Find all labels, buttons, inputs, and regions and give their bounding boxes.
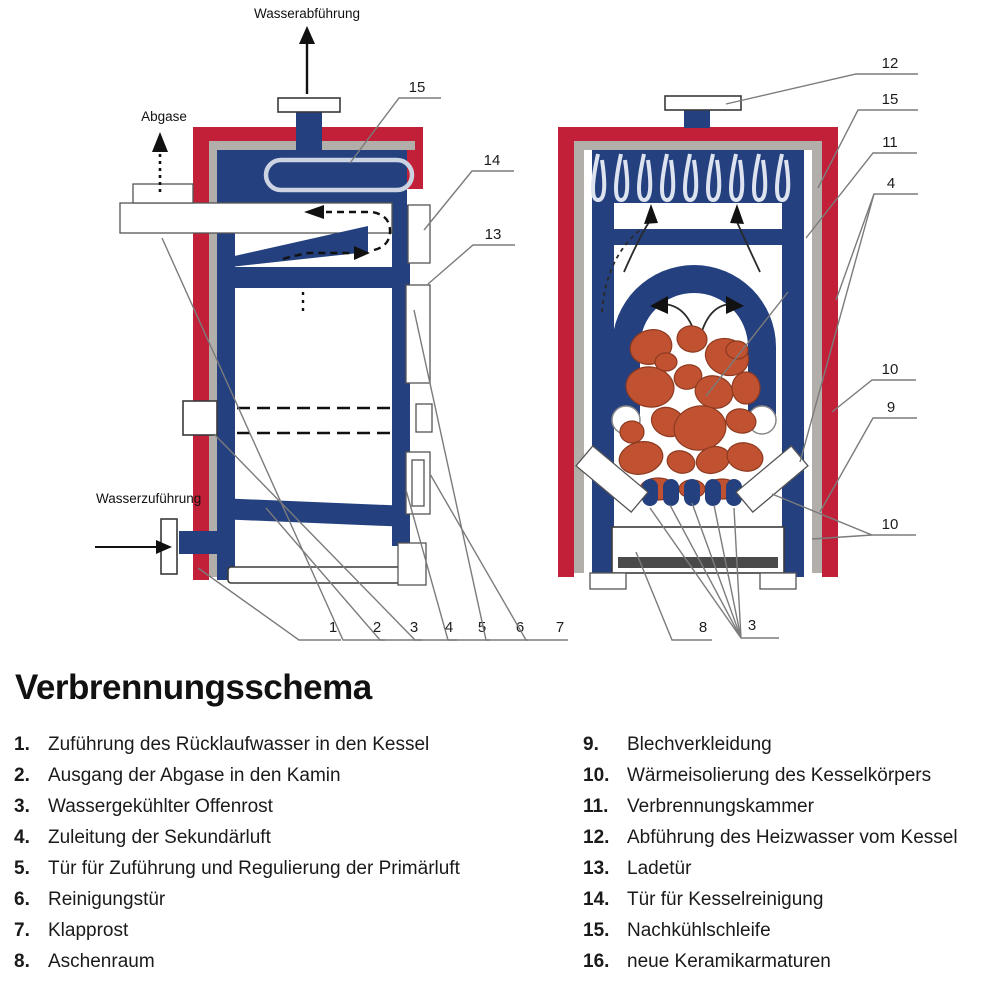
legend-text: Zuleitung der Sekundärluft <box>48 827 271 849</box>
legend-text: neue Keramikarmaturen <box>627 951 831 973</box>
legend-item-6: 6.Reinigungstür <box>0 889 565 920</box>
callout-11: 11 <box>882 134 898 151</box>
r-insulation-top <box>574 141 812 150</box>
legend-item-7: 7.Klapprost <box>0 920 565 951</box>
r-jacket-top-block <box>592 150 804 203</box>
outer-shell-red-left <box>193 127 209 580</box>
door-knob <box>416 404 432 432</box>
callout-4-right: 4 <box>887 175 895 192</box>
callout-15-left: 15 <box>409 79 426 96</box>
page: Wasserabführung <box>0 0 1000 1000</box>
chimney-pipe <box>296 110 322 152</box>
legend-num: 7. <box>0 920 48 942</box>
r-jacket-right-wall <box>782 150 804 577</box>
legend-num: 12. <box>565 827 627 849</box>
callout-10-upper: 10 <box>882 361 899 378</box>
legend-num: 11. <box>565 796 627 818</box>
legend-num: 2. <box>0 765 48 787</box>
left-boiler: Wasserabführung <box>95 6 432 585</box>
water-inlet-label: Wasserzuführung <box>96 491 201 506</box>
flue-gas-channel <box>120 203 392 233</box>
legend-num: 15. <box>565 920 627 942</box>
callout-1: 1 <box>329 619 337 636</box>
legend-text: Wassergekühlter Offenrost <box>48 796 273 818</box>
callout-7: 7 <box>556 619 564 636</box>
legend-text: Aschenraum <box>48 951 155 973</box>
callout-9: 9 <box>887 399 895 416</box>
secondary-air-flange <box>183 401 217 435</box>
chimney-flange <box>278 98 340 112</box>
legend-text: Ladetür <box>627 858 691 880</box>
legend-item-2: 2.Ausgang der Abgase in den Kamin <box>0 765 565 796</box>
legend-item-10: 10.Wärmeisolierung des Kesselkörpers <box>565 765 1000 796</box>
callout-3-right: 3 <box>748 617 756 634</box>
legend-text: Blechverkleidung <box>627 734 772 756</box>
r-chimney-pipe <box>684 108 710 128</box>
legend-item-13: 13.Ladetür <box>565 858 1000 889</box>
legend-text: Abführung des Heizwasser vom Kessel <box>627 827 958 849</box>
door-opening-dashes <box>237 408 392 433</box>
callout-14: 14 <box>484 152 501 169</box>
legend: 1.Zuführung des Rücklaufwasser in den Ke… <box>0 734 1000 982</box>
flue-gas-label: Abgase <box>141 109 187 124</box>
legend-text: Zuführung des Rücklaufwasser in den Kess… <box>48 734 429 756</box>
jacket-lower-right <box>392 518 410 546</box>
legend-item-5: 5.Tür für Zuführung und Regulierung der … <box>0 858 565 889</box>
legend-item-3: 3.Wassergekühlter Offenrost <box>0 796 565 827</box>
callout-3-left: 3 <box>410 619 418 636</box>
water-inlet-arrow <box>95 540 172 554</box>
legend-text: Wärmeisolierung des Kesselkörpers <box>627 765 931 787</box>
foot-left <box>590 573 626 589</box>
primary-air-door-inner <box>412 460 424 506</box>
cleaning-door-upper <box>408 205 430 263</box>
water-inlet-pipe <box>179 531 217 554</box>
legend-text: Verbrennungskammer <box>627 796 814 818</box>
boiler-diagram: Wasserabführung <box>0 0 1000 655</box>
page-title: Verbrennungsschema <box>15 668 372 708</box>
callout-15-right: 15 <box>882 91 899 108</box>
legend-num: 14. <box>565 889 627 911</box>
right-boiler <box>558 96 838 589</box>
r-insulation-right <box>812 141 822 573</box>
legend-item-15: 15.Nachkühlschleife <box>565 920 1000 951</box>
legend-num: 13. <box>565 858 627 880</box>
r-insulation-left <box>574 141 584 573</box>
callout-13: 13 <box>485 226 502 243</box>
legend-num: 10. <box>565 765 627 787</box>
legend-text: Ausgang der Abgase in den Kamin <box>48 765 341 787</box>
legend-num: 5. <box>0 858 48 880</box>
water-cooled-grate <box>217 498 410 527</box>
legend-num: 1. <box>0 734 48 756</box>
legend-item-9: 9.Blechverkleidung <box>565 734 1000 765</box>
callout-10-lower: 10 <box>882 516 899 533</box>
legend-text: Tür für Zuführung und Regulierung der Pr… <box>48 858 460 880</box>
legend-num: 3. <box>0 796 48 818</box>
legend-num: 4. <box>0 827 48 849</box>
flue-duct-box <box>133 184 193 203</box>
ash-pan <box>228 567 408 583</box>
legend-item-1: 1.Zuführung des Rücklaufwasser in den Ke… <box>0 734 565 765</box>
upper-beam <box>217 267 410 288</box>
water-outlet-label: Wasserabführung <box>254 6 360 21</box>
legend-column-right: 9.Blechverkleidung 10.Wärmeisolierung de… <box>565 734 1000 982</box>
callout-8: 8 <box>699 619 707 636</box>
legend-item-14: 14.Tür für Kesselreinigung <box>565 889 1000 920</box>
foot-right <box>760 573 796 589</box>
legend-num: 9. <box>565 734 627 756</box>
legend-num: 8. <box>0 951 48 973</box>
callout-12: 12 <box>882 55 899 72</box>
legend-text: Klapprost <box>48 920 128 942</box>
legend-item-8: 8.Aschenraum <box>0 951 565 982</box>
legend-item-11: 11.Verbrennungskammer <box>565 796 1000 827</box>
legend-num: 6. <box>0 889 48 911</box>
legend-column-left: 1.Zuführung des Rücklaufwasser in den Ke… <box>0 734 565 982</box>
r-shell-red-left <box>558 127 574 577</box>
water-outlet-arrow <box>299 26 315 94</box>
r-jacket-left-wall <box>592 150 614 577</box>
legend-text: Tür für Kesselreinigung <box>627 889 823 911</box>
lower-door <box>398 543 426 585</box>
r-shell-red-top <box>558 127 838 143</box>
legend-item-12: 12.Abführung des Heizwasser vom Kessel <box>565 827 1000 858</box>
legend-text: Nachkühlschleife <box>627 920 771 942</box>
legend-item-4: 4.Zuleitung der Sekundärluft <box>0 827 565 858</box>
legend-num: 16. <box>565 951 627 973</box>
legend-text: Reinigungstür <box>48 889 165 911</box>
flue-gas-arrow <box>152 132 168 192</box>
legend-item-16: 16.neue Keramikarmaturen <box>565 951 1000 982</box>
